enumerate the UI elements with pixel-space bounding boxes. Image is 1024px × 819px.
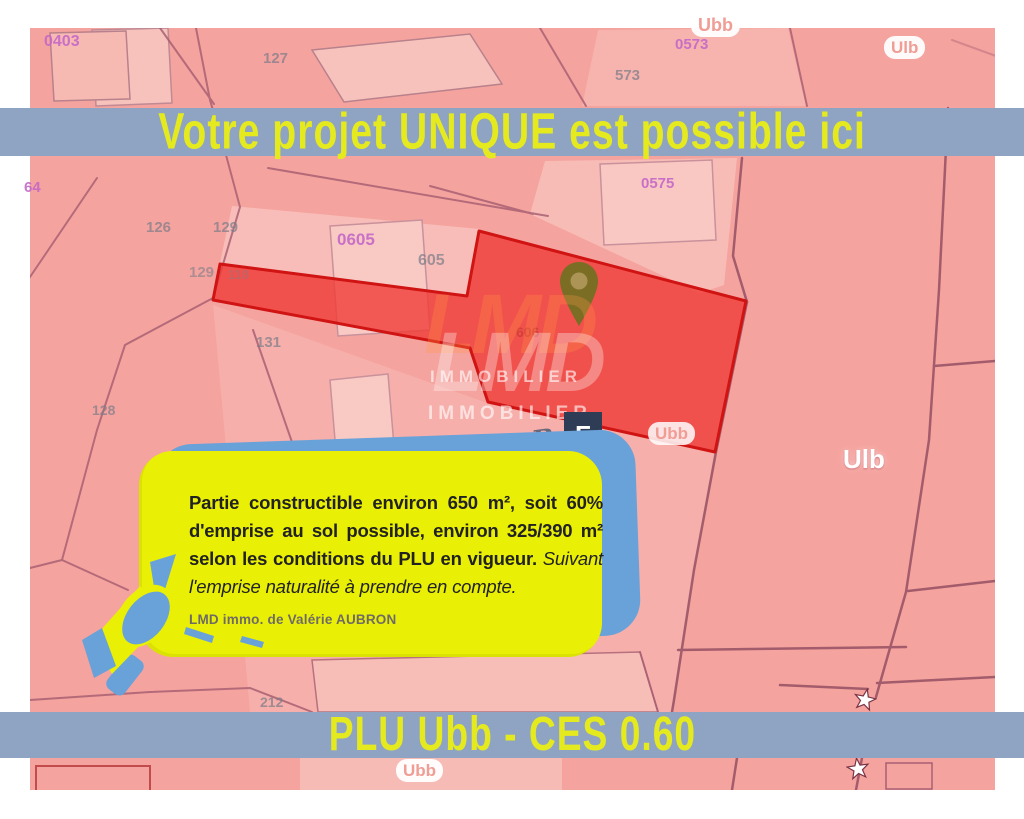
parcel-label-118: 118 xyxy=(228,267,249,282)
parcel-label-126: 126 xyxy=(146,219,171,236)
parcel-label-605: 605 xyxy=(418,252,445,270)
listing-graphic: 0403 64 127 0573 573 0575 126 129 129 11… xyxy=(0,0,1024,819)
location-pin-icon xyxy=(556,260,602,330)
zone-badge-ubb-parcel: Ubb xyxy=(648,422,695,445)
plu-text: PLU Ubb - CES 0.60 xyxy=(328,707,695,762)
zone-label-ulb-midright: Ulb xyxy=(843,444,885,475)
headline-text: Votre projet UNIQUE est possible ici xyxy=(158,103,866,161)
parcel-label-128: 128 xyxy=(92,402,115,418)
parcel-label-131: 131 xyxy=(256,334,281,351)
parcel-label-0573: 0573 xyxy=(675,36,708,53)
parcel-label-129: 129 xyxy=(213,219,238,236)
parcel-label-0605: 0605 xyxy=(337,230,375,250)
zone-badge-ulb-topright: Ulb xyxy=(884,36,925,59)
zone-badge-ubb-top: Ubb xyxy=(691,14,740,37)
parcel-label-129b: 129 xyxy=(189,264,214,281)
parcel-label-127: 127 xyxy=(263,50,288,67)
megaphone-icon xyxy=(55,540,285,710)
junction-star-icon xyxy=(846,757,870,781)
junction-star-icon xyxy=(853,688,877,712)
parcel-label-606: 606 xyxy=(516,324,539,340)
plu-banner: PLU Ubb - CES 0.60 xyxy=(0,712,1024,758)
parcel-label-0403: 0403 xyxy=(44,33,80,51)
parcel-label-0575: 0575 xyxy=(641,175,674,192)
parcel-label-64: 64 xyxy=(24,179,41,196)
headline-banner: Votre projet UNIQUE est possible ici xyxy=(0,108,1024,156)
parcel-label-573: 573 xyxy=(615,67,640,84)
